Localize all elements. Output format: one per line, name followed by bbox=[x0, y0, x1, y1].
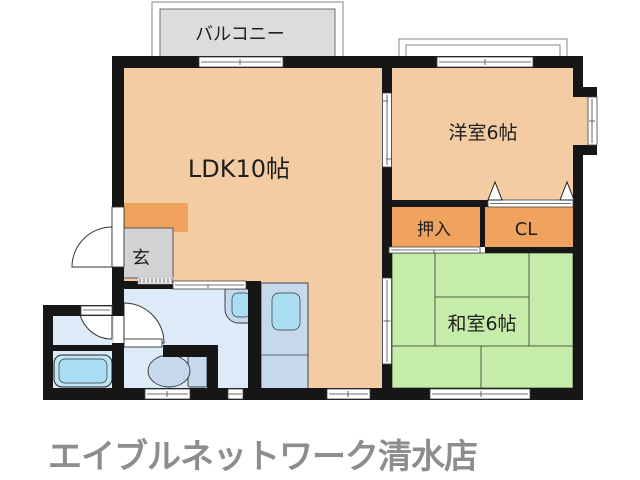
bathtub-inner bbox=[59, 359, 107, 383]
japanese-room-label: 和室6帖 bbox=[447, 313, 516, 335]
western-room-label: 洋室6帖 bbox=[448, 122, 517, 144]
changing-room-door-leaf bbox=[81, 306, 112, 315]
toilet-window bbox=[145, 389, 190, 399]
genkan-label: 玄 bbox=[132, 248, 150, 269]
ldk-japanese-room-sliding-door bbox=[383, 278, 392, 364]
western-room-window bbox=[437, 57, 533, 67]
washroom-east-wall bbox=[248, 281, 261, 392]
bay-window-north-wall bbox=[573, 87, 597, 97]
genkan-step-hatch bbox=[138, 277, 173, 284]
toilet-tank bbox=[188, 354, 207, 387]
entrance-door-swing-icon bbox=[72, 227, 112, 267]
toilet-east-wall bbox=[207, 345, 218, 388]
west-wall-upper bbox=[112, 56, 124, 207]
oshiire-label: 押入 bbox=[417, 220, 451, 240]
japanese-room-south-window bbox=[430, 389, 530, 399]
kitchen-sink bbox=[272, 293, 300, 330]
bay-window bbox=[588, 97, 597, 145]
cl-south-wall bbox=[485, 247, 573, 253]
balcony-label: バルコニー bbox=[195, 24, 285, 45]
east-wall-upper bbox=[573, 56, 583, 87]
ldk-western-room-sliding-door bbox=[383, 93, 392, 167]
east-wall-lower bbox=[573, 155, 583, 400]
washroom-door-leaf bbox=[124, 339, 162, 347]
bath-block-east-wall bbox=[112, 352, 124, 388]
ldk-label: LDK10帖 bbox=[188, 155, 290, 183]
closet-divider-wall bbox=[480, 207, 485, 247]
bay-window-south-wall bbox=[573, 145, 597, 155]
east-balcony-inner bbox=[406, 45, 560, 57]
floor-plan-drawing: バルコニー LDK10帖 洋室6帖 押入 CL 玄 和室6帖 エイブルネットワー… bbox=[0, 0, 640, 480]
oshiire-fusuma-door bbox=[389, 247, 480, 253]
bay-window-floor bbox=[573, 97, 588, 145]
store-name-text: エイブルネットワーク清水店 bbox=[48, 437, 477, 477]
washroom-sliding-door bbox=[173, 281, 246, 289]
bath-divider-wall bbox=[53, 345, 114, 351]
floor-plan-page: バルコニー LDK10帖 洋室6帖 押入 CL 玄 和室6帖 エイブルネットワー… bbox=[0, 0, 640, 480]
ldk-balcony-window bbox=[199, 57, 283, 67]
washroom-window bbox=[228, 389, 243, 399]
toilet-bowl bbox=[148, 355, 190, 387]
entrance-door-leaf bbox=[112, 207, 124, 267]
ldk-south-window bbox=[327, 389, 370, 399]
cl-label: CL bbox=[515, 219, 538, 240]
bath-block-west-wall bbox=[43, 305, 53, 398]
